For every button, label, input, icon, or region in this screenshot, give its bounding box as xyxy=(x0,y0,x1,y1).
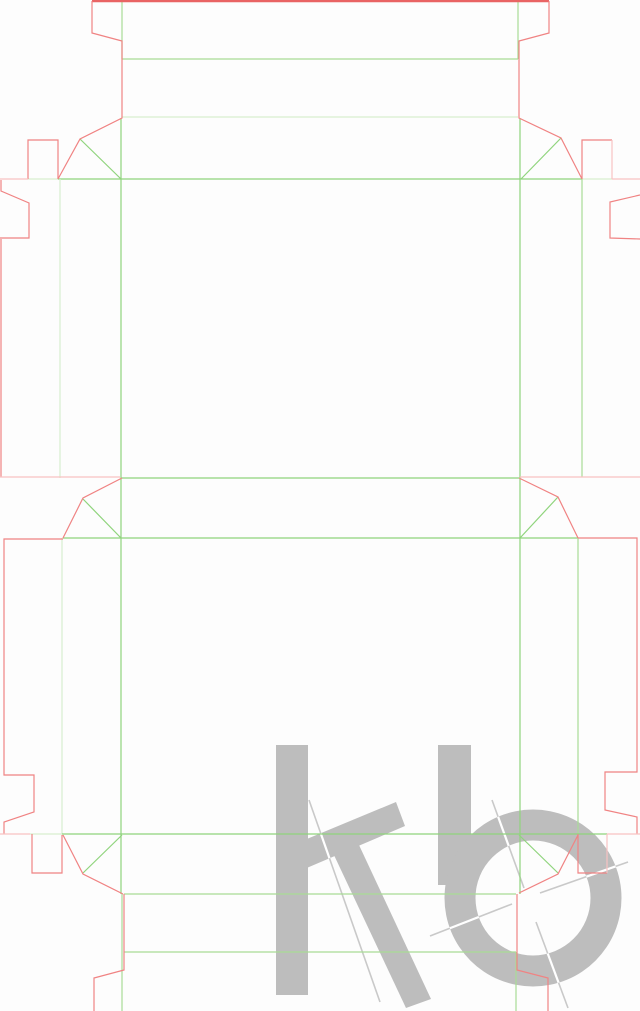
dieline-svg xyxy=(0,0,640,1011)
dieline-drawing xyxy=(0,0,640,1011)
watermark-kb-logo xyxy=(276,745,622,1008)
